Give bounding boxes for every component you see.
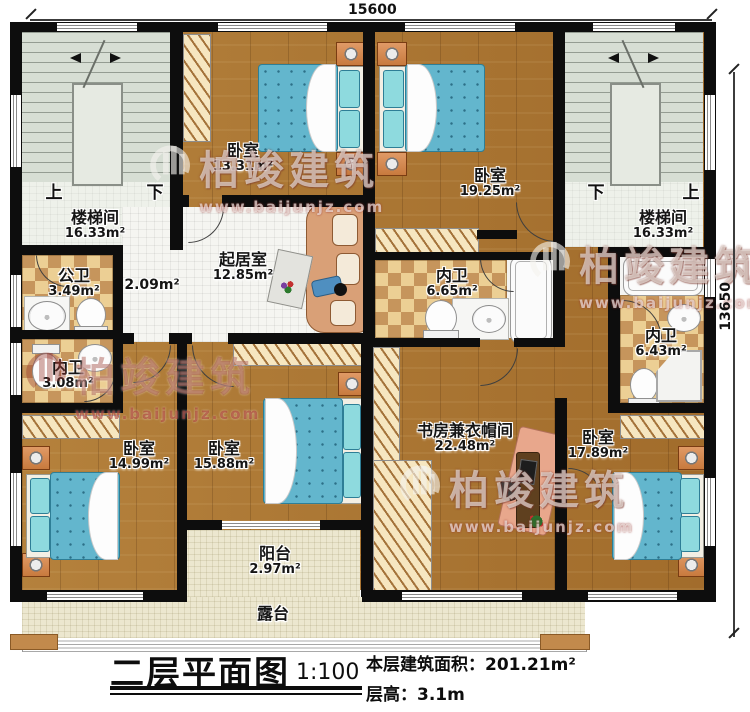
stair-direction-down: 下 xyxy=(147,178,164,203)
room-label-bedroom-bottom-left: 卧室14.99m² xyxy=(109,441,169,471)
sofa-cushion xyxy=(332,214,358,246)
dimension-tick xyxy=(706,8,717,19)
bathtub xyxy=(623,256,703,296)
wall xyxy=(10,330,118,339)
stair-arrow xyxy=(648,53,659,63)
window xyxy=(588,592,677,600)
wall xyxy=(361,340,373,597)
room-label-bedroom-bottom-right: 卧室17.89m² xyxy=(568,430,628,460)
nightstand xyxy=(22,446,50,470)
window xyxy=(57,23,137,31)
wall xyxy=(598,247,704,257)
room-label-terrace: 露台 xyxy=(257,606,289,623)
window xyxy=(11,343,21,395)
nightstand xyxy=(377,152,407,176)
wall xyxy=(555,398,567,590)
title-underline xyxy=(110,693,362,695)
dimension-top: 15600 xyxy=(348,2,397,18)
nightstand xyxy=(678,446,705,470)
window xyxy=(405,23,515,31)
pillow xyxy=(383,70,404,108)
floor-area-value: 201.21m² xyxy=(485,655,576,675)
window xyxy=(47,592,143,600)
floor-height-value: 3.1m xyxy=(417,685,465,705)
wall xyxy=(228,333,367,344)
stair-arrow xyxy=(608,53,619,63)
pillow xyxy=(30,516,50,552)
pillow xyxy=(383,110,404,148)
title-underline xyxy=(110,686,362,690)
terrace-step-left xyxy=(10,634,58,650)
wall xyxy=(169,333,192,344)
stair-direction-up: 上 xyxy=(46,178,63,203)
wall xyxy=(182,520,222,530)
wall xyxy=(608,403,716,413)
room-label-study-cloakroom: 书房兼衣帽间22.48m² xyxy=(417,423,513,453)
bed-sheet xyxy=(88,472,118,560)
wardrobe xyxy=(375,228,479,254)
window xyxy=(705,478,715,546)
pillow xyxy=(680,478,700,514)
dimension-tick xyxy=(25,8,36,19)
monitor xyxy=(517,459,537,485)
wall xyxy=(222,195,363,207)
wall xyxy=(177,333,187,602)
person-head xyxy=(334,283,347,296)
nightstand xyxy=(336,42,366,66)
nightstand xyxy=(336,152,366,176)
wall xyxy=(10,245,120,255)
floor-area-text: 本层建筑面积：201.21m² xyxy=(366,650,576,675)
room-label-bedroom-bottom-middle: 卧室15.88m² xyxy=(194,441,254,471)
window xyxy=(593,23,675,31)
bathtub xyxy=(510,256,552,344)
stair-direction-up: 上 xyxy=(683,178,700,203)
terrace-floor xyxy=(22,597,585,638)
floor-height-text: 层高：3.1m xyxy=(366,680,465,705)
desk-chair xyxy=(498,478,521,501)
wall xyxy=(363,22,375,342)
dimension-right: 13650 xyxy=(718,282,734,331)
window xyxy=(11,95,21,167)
wardrobe xyxy=(233,342,363,366)
nightstand xyxy=(377,42,407,66)
bed-sheet xyxy=(306,64,336,152)
wall xyxy=(553,22,565,340)
dimension-line-top xyxy=(30,19,712,21)
wall xyxy=(183,195,189,207)
wall xyxy=(608,252,620,410)
wardrobe xyxy=(373,460,432,592)
wall xyxy=(170,22,183,250)
room-label-stairwell-right: 楼梯间16.33m² xyxy=(633,210,693,240)
wall xyxy=(477,230,517,239)
wardrobe xyxy=(183,34,211,142)
wall xyxy=(113,245,123,413)
wall xyxy=(122,333,134,344)
window xyxy=(402,592,522,600)
pillow xyxy=(30,478,50,514)
balcony-door-window xyxy=(222,521,320,529)
floor-plan: 楼梯间16.33m² 上 下 卧室13.31m² 卧室19.25m² 楼梯间16… xyxy=(0,0,750,712)
floor-height-label: 层高： xyxy=(366,685,417,705)
room-label-hall: 2.09m² xyxy=(124,278,179,293)
stair-arrow xyxy=(110,53,121,63)
plan-scale: 1:100 xyxy=(296,660,359,685)
wall xyxy=(10,403,118,413)
flowers xyxy=(280,280,296,294)
window xyxy=(11,473,21,546)
wall xyxy=(320,520,367,530)
window xyxy=(11,275,21,327)
pillow xyxy=(343,452,361,498)
pillow xyxy=(343,404,361,450)
stair-landing-box xyxy=(72,83,123,186)
room-label-bedroom-top-left: 卧室13.31m² xyxy=(213,143,273,173)
room-label-public-bath: 公卫3.49m² xyxy=(48,268,99,298)
wall xyxy=(373,338,480,347)
window xyxy=(218,23,327,31)
room-label-stairwell-left: 楼梯间16.33m² xyxy=(65,210,125,240)
pillow xyxy=(339,110,360,148)
sink xyxy=(28,301,66,331)
sofa-cushion xyxy=(330,300,356,326)
room-label-balcony: 阳台2.97m² xyxy=(249,546,300,576)
stair-direction-down: 下 xyxy=(588,178,605,203)
room-label-bath-center: 内卫6.65m² xyxy=(426,268,477,298)
wall xyxy=(514,338,565,347)
pillow xyxy=(339,70,360,108)
plant xyxy=(528,513,545,530)
window xyxy=(705,259,715,297)
terrace-step-right xyxy=(540,634,590,650)
pillow xyxy=(680,516,700,552)
stair-arrow xyxy=(70,53,81,63)
wardrobe xyxy=(620,415,705,439)
room-label-bath-right: 内卫6.43m² xyxy=(635,328,686,358)
wall xyxy=(375,252,565,260)
wardrobe xyxy=(22,415,120,439)
toilet xyxy=(630,368,658,402)
window xyxy=(705,95,715,170)
stair-landing-box xyxy=(610,83,661,186)
dimension-line-right xyxy=(733,72,735,637)
floor-area-label: 本层建筑面积： xyxy=(366,655,485,675)
sink xyxy=(472,305,506,333)
room-label-bedroom-top-right: 卧室19.25m² xyxy=(460,168,520,198)
room-label-bath-left: 内卫3.08m² xyxy=(42,360,93,390)
room-label-living-room: 起居室12.85m² xyxy=(213,252,273,282)
